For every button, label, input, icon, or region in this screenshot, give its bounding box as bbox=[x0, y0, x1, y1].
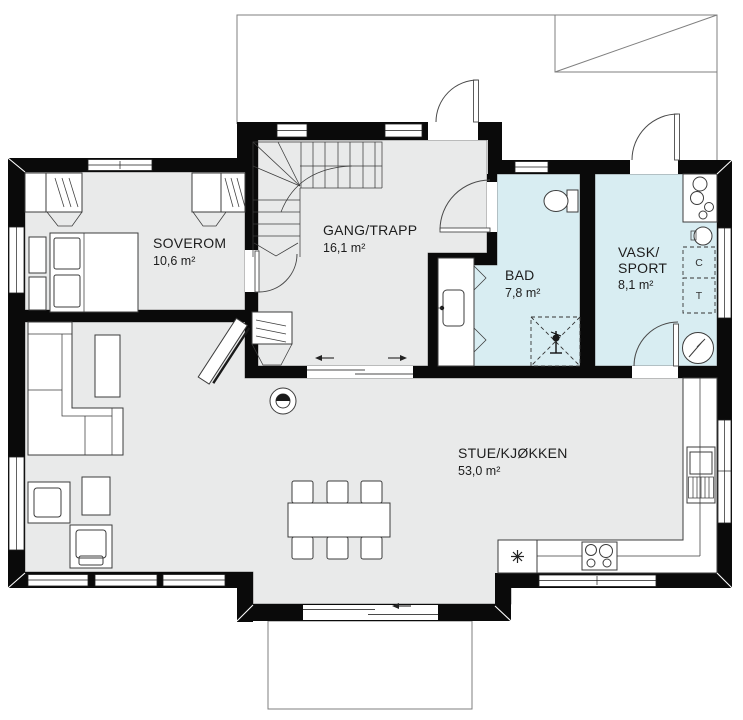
entry-door bbox=[428, 80, 479, 140]
room-area: 8,1 m² bbox=[618, 278, 667, 292]
vask-exterior-door bbox=[630, 114, 680, 174]
window-vask-right bbox=[718, 228, 731, 318]
terrace-outline bbox=[268, 621, 472, 709]
laundry-sink-counter bbox=[683, 174, 717, 222]
room-name: VASK/ bbox=[618, 245, 667, 261]
dining-chair bbox=[292, 481, 313, 503]
window-stue-bottom-2 bbox=[95, 575, 157, 587]
room-area: 7,8 m² bbox=[505, 286, 540, 300]
room-name: SOVEROM bbox=[153, 236, 226, 252]
dining-chair bbox=[292, 537, 313, 559]
room-area: 53,0 m² bbox=[458, 464, 568, 478]
room-label-gang-trapp: GANG/TRAPP 16,1 m² bbox=[323, 223, 417, 255]
water-heater bbox=[683, 333, 714, 364]
room-label-bad: BAD 7,8 m² bbox=[505, 268, 540, 300]
room-name: STUE/KJØKKEN bbox=[458, 446, 568, 462]
toilet bbox=[544, 190, 578, 212]
dining-chair bbox=[361, 481, 382, 503]
nightstand bbox=[29, 277, 46, 310]
room-area: 16,1 m² bbox=[323, 241, 417, 255]
armchair bbox=[70, 525, 112, 568]
dryer-label: C bbox=[695, 257, 703, 269]
dining-chair bbox=[327, 537, 348, 559]
double-bed bbox=[50, 233, 138, 312]
window-kitchen-bottom bbox=[539, 575, 656, 587]
fridge bbox=[687, 447, 715, 503]
patio-sliding-door bbox=[303, 603, 438, 620]
window-bad-top bbox=[515, 162, 548, 173]
room-name: GANG/TRAPP bbox=[323, 223, 417, 239]
window-gang-top-2 bbox=[385, 124, 422, 137]
window-stue-bottom-1 bbox=[28, 575, 88, 587]
dining-table bbox=[288, 481, 390, 559]
window-kitchen-right bbox=[718, 420, 731, 523]
floor-plan-drawing: C T bbox=[0, 0, 743, 720]
window-soverom-top bbox=[88, 160, 152, 171]
nightstand bbox=[29, 237, 46, 273]
armchair bbox=[28, 482, 70, 523]
dining-chair bbox=[327, 481, 348, 503]
coffee-table bbox=[95, 335, 120, 397]
floor-plan: C T SOVEROM 10,6 m² GANG/TRAPP 16,1 m² B… bbox=[0, 0, 743, 720]
room-name: BAD bbox=[505, 268, 540, 284]
cooktop bbox=[582, 542, 617, 570]
window-stue-left bbox=[9, 457, 24, 550]
window-stue-bottom-3 bbox=[163, 575, 225, 587]
window-soverom-left bbox=[9, 227, 24, 293]
dining-chair bbox=[361, 537, 382, 559]
washer-label: T bbox=[696, 290, 703, 302]
side-table bbox=[82, 477, 110, 515]
room-name: SPORT bbox=[618, 261, 667, 277]
room-label-vask-sport: VASK/ SPORT 8,1 m² bbox=[618, 245, 667, 292]
room-area: 10,6 m² bbox=[153, 254, 226, 268]
kitchen-sink bbox=[498, 540, 537, 573]
window-gang-top-1 bbox=[277, 124, 307, 137]
wood-stove bbox=[270, 388, 296, 414]
room-label-stue-kjokken: STUE/KJØKKEN 53,0 m² bbox=[458, 446, 568, 478]
room-label-soverom: SOVEROM 10,6 m² bbox=[153, 236, 226, 268]
